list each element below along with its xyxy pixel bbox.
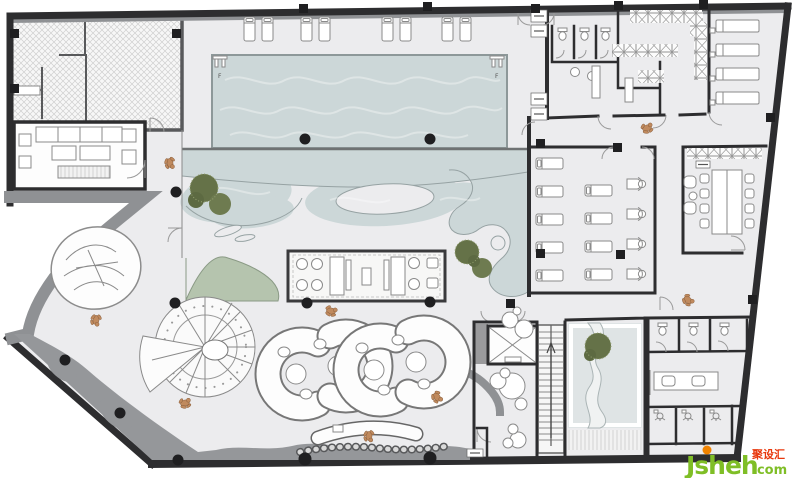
vip-armchair — [122, 129, 136, 142]
bar-counter — [384, 260, 389, 290]
tea-chair — [745, 174, 754, 183]
square-column — [748, 295, 757, 304]
desk-decor — [333, 425, 343, 432]
back-of-house — [12, 20, 182, 132]
relax-lounger — [536, 186, 563, 197]
round-column — [425, 134, 436, 145]
square-column — [423, 2, 432, 11]
deck-lines — [568, 430, 642, 450]
bar-counter — [391, 257, 405, 295]
tea-chair — [700, 204, 709, 213]
boulder — [515, 320, 533, 338]
square-column — [531, 4, 540, 13]
tea-armchair — [684, 202, 696, 214]
pool-ladder-label: F — [495, 73, 499, 80]
bar-counter — [330, 257, 344, 295]
vip-bench — [58, 166, 110, 178]
boulder — [508, 424, 518, 434]
massage-bed — [710, 68, 759, 81]
bench — [592, 66, 600, 98]
bar-stool — [297, 280, 308, 291]
relax-lounger — [536, 270, 563, 281]
relax-lounger — [585, 213, 612, 224]
relax-lounger — [585, 269, 612, 280]
swimming-pool: F F — [212, 55, 507, 148]
vip-armchair — [19, 134, 31, 146]
round-column — [424, 452, 437, 465]
round-column — [170, 298, 181, 309]
vanity-sink — [692, 376, 705, 386]
round-column — [173, 455, 184, 466]
sink — [571, 68, 580, 77]
watermark: Jsheh .com 聚设汇 — [684, 446, 787, 478]
stair-hub — [202, 340, 228, 360]
wc-toilet — [658, 323, 667, 335]
round-table — [286, 364, 306, 384]
wc-toilet — [601, 28, 610, 40]
square-column — [506, 299, 515, 308]
bar-stool — [312, 280, 323, 291]
boulder — [500, 368, 510, 378]
lounger — [319, 17, 330, 41]
massage-bed — [710, 92, 759, 105]
square-column — [766, 113, 775, 122]
relax-lounger — [585, 185, 612, 196]
wc-toilet — [580, 28, 589, 40]
square-column — [699, 0, 708, 9]
shaft-panel — [474, 324, 488, 364]
bar-stool — [427, 258, 438, 268]
boh-hatch — [12, 20, 182, 130]
lounger — [244, 17, 255, 41]
round-column — [115, 408, 126, 419]
vip-armchair — [122, 150, 136, 164]
bench — [625, 78, 633, 102]
boulder — [515, 398, 527, 410]
bar-counter — [346, 260, 351, 290]
wc-toilet — [689, 323, 698, 335]
square-column — [10, 84, 19, 93]
elevator-door — [505, 357, 521, 362]
bar-stool — [297, 259, 308, 270]
round-column — [302, 298, 313, 309]
round-column — [425, 297, 436, 308]
tea-side-table — [689, 192, 697, 200]
vip-coffee-table — [52, 146, 76, 160]
pool-ladder-label: F — [218, 73, 222, 80]
round-table — [364, 360, 384, 380]
square-column — [614, 1, 623, 10]
floor-plan-canvas: F F — [0, 0, 800, 478]
locker-run — [612, 44, 678, 57]
deck-island — [491, 236, 505, 250]
lounger — [460, 17, 471, 41]
round-table — [406, 352, 426, 372]
vip-coffee-table — [80, 146, 110, 160]
locker-run — [638, 70, 664, 83]
vip-sofa — [36, 127, 122, 142]
lounger — [400, 17, 411, 41]
round-column — [171, 187, 182, 198]
square-column — [536, 139, 545, 148]
bar-stool — [409, 258, 420, 269]
wc-toilet — [720, 323, 729, 335]
square-column — [172, 29, 181, 38]
round-column — [300, 134, 311, 145]
lounger — [442, 17, 453, 41]
tea-chair — [700, 219, 709, 228]
tea-chair — [700, 174, 709, 183]
lounger — [301, 17, 312, 41]
round-column — [299, 453, 312, 466]
tea-chair — [700, 189, 709, 198]
bar-stool — [312, 259, 323, 270]
massage-bed — [710, 20, 759, 33]
bar-stool — [409, 279, 420, 290]
square-column — [299, 4, 308, 13]
square-column — [536, 249, 545, 258]
square-column — [613, 143, 622, 152]
relax-lounger — [536, 158, 563, 169]
vanity-sink — [662, 376, 675, 386]
vip-armchair — [19, 156, 31, 168]
square-column — [10, 29, 19, 38]
bar-table — [362, 268, 371, 285]
tea-chair — [745, 189, 754, 198]
round-column — [60, 355, 71, 366]
relax-lounger — [536, 214, 563, 225]
boulder — [503, 438, 513, 448]
tea-chair — [745, 219, 754, 228]
bar-stool — [427, 278, 438, 288]
tea-armchair — [684, 176, 696, 188]
lounger — [262, 17, 273, 41]
square-column — [616, 250, 625, 259]
watermark-brand: Jsheh — [684, 451, 758, 478]
tea-chair — [745, 204, 754, 213]
locker-run — [690, 12, 703, 36]
tea-lockers — [687, 148, 762, 159]
vip-lounge — [14, 122, 145, 189]
massage-bed — [710, 44, 759, 57]
relax-lounger — [585, 241, 612, 252]
boulder — [513, 307, 521, 315]
wc-toilet — [558, 28, 567, 40]
watermark-cjk: 聚设汇 — [751, 447, 785, 461]
watermark-tld: .com — [752, 463, 787, 478]
lounger — [382, 17, 393, 41]
floor-plan: F F — [0, 0, 800, 478]
bar-island — [288, 251, 445, 301]
